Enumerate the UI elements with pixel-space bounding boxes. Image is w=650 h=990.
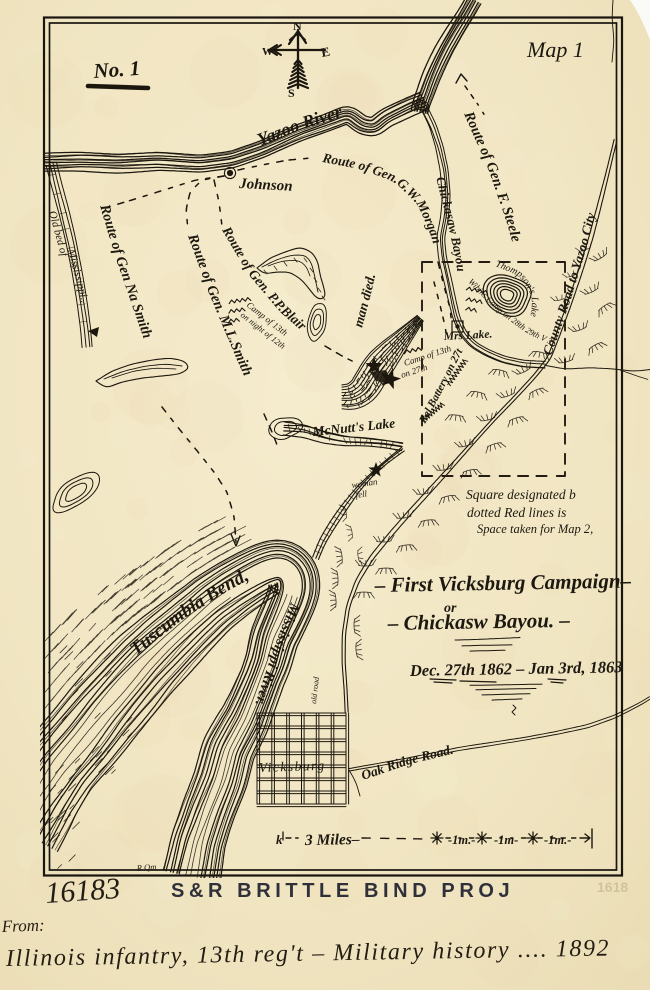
svg-text:R.Qm: R.Qm [135, 861, 156, 873]
svg-text:Vicksburg: Vicksburg [259, 758, 326, 775]
svg-text:W: W [262, 46, 273, 58]
svg-text:S&R BRITTLE BIND PROJ: S&R BRITTLE BIND PROJ [171, 880, 514, 902]
svg-text:-1m-: -1m- [494, 833, 518, 847]
svg-text:16183: 16183 [44, 872, 121, 910]
svg-text:Square designated b: Square designated b [466, 487, 576, 502]
svg-text:k: k [276, 832, 283, 847]
svg-text:dotted Red lines is: dotted Red lines is [467, 505, 566, 520]
svg-text:1618: 1618 [597, 879, 628, 895]
svg-text:-1m.-: -1m.- [448, 833, 475, 847]
svg-text:fell: fell [355, 488, 368, 500]
svg-text:Map 1: Map 1 [526, 37, 584, 62]
svg-text:-1m.-: -1m.- [544, 833, 571, 847]
svg-text:– Chickasw Bayou. –: – Chickasw Bayou. – [387, 608, 571, 635]
svg-text:No. 1: No. 1 [92, 56, 141, 83]
svg-text:Space taken for Map 2,: Space taken for Map 2, [477, 522, 593, 536]
svg-text:– First Vicksburg Campaign–: – First Vicksburg Campaign– [374, 569, 632, 597]
svg-text:Johnson: Johnson [238, 176, 293, 195]
svg-text:3 Miles–: 3 Miles– [304, 831, 360, 849]
svg-text:Dec. 27th 1862 – Jan 3rd, 1863: Dec. 27th 1862 – Jan 3rd, 1863 [409, 657, 623, 680]
svg-text:S: S [288, 86, 295, 100]
svg-text:N: N [293, 19, 302, 33]
svg-text:From:: From: [0, 916, 44, 937]
